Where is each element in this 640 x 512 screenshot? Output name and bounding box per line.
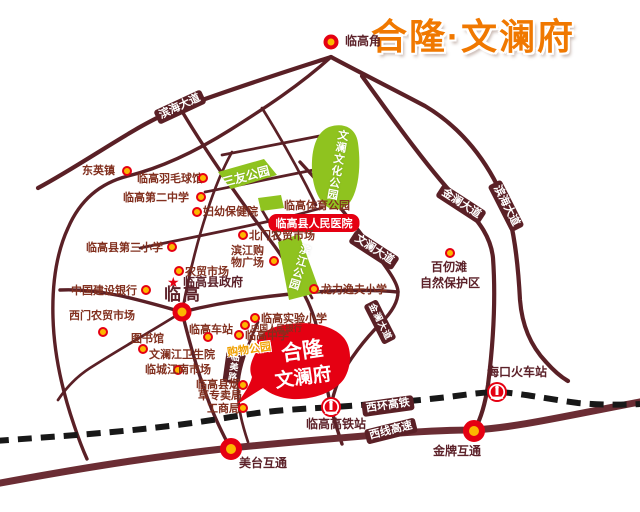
label-city-lingao: 临高 — [164, 288, 202, 301]
poi-binjiang-mall-line1: 滨江购 — [231, 245, 264, 257]
road-grid-4 — [262, 108, 316, 205]
poi-beimen-market: 北门农贸市场 — [249, 230, 315, 242]
poi-marker-icon — [141, 285, 151, 295]
train-station-icon — [486, 381, 508, 403]
poi-jiangnan-market: 临城江南市场 — [145, 364, 211, 376]
poi-marker-icon — [138, 344, 148, 354]
poi-no2-middle: 临高第二中学 — [123, 192, 189, 204]
poi-longli-primary: 龙力逸夫小学 — [321, 284, 387, 296]
poi-marker-icon — [234, 330, 244, 340]
poi-marker-icon — [203, 332, 213, 342]
poi-marker-icon — [269, 256, 279, 266]
label-nature-reserve-line1: 百仞滩 — [431, 261, 467, 274]
poi-badminton: 临高羽毛球馆 — [137, 173, 203, 185]
poi-marker-icon — [238, 403, 248, 413]
park-sports-shape — [258, 195, 284, 211]
label-lingao-cape: 临高角 — [345, 35, 381, 48]
poi-binjiang-mall-line2: 物广场 — [231, 257, 264, 269]
page-title: 合隆·文澜府 — [371, 8, 575, 60]
label-nature-reserve-line2: 自然保护区 — [420, 277, 480, 290]
poi-marker-icon — [309, 284, 319, 294]
poi-marker-icon — [240, 320, 250, 330]
map-base-layer — [0, 0, 640, 512]
label-lingao-hsr-station: 临高高铁站 — [306, 418, 366, 431]
poi-marker-icon — [198, 173, 208, 183]
poi-ximen-market: 西门农贸市场 — [69, 310, 135, 322]
poi-fuyou-hospital: 妇幼保健院 — [203, 206, 258, 218]
poi-wenlanjiang-clinic: 文澜江卫生院 — [149, 349, 215, 361]
poi-marker-icon — [98, 327, 108, 337]
interchange-marker-icon — [463, 420, 485, 442]
poi-gongshangju: 工商局 — [207, 403, 240, 415]
poi-marker-icon — [167, 242, 177, 252]
label-haikou-rail-station: 海口火车站 — [487, 366, 547, 379]
cape-marker-icon — [324, 35, 339, 50]
label-jinpai-interchange: 金牌互通 — [433, 445, 481, 458]
poi-library: 图书馆 — [131, 333, 164, 345]
poi-dongyingzhen: 东英镇 — [82, 165, 115, 177]
poi-marker-icon — [238, 230, 248, 240]
map-canvas: 合隆·文澜府 临高角 滨海大道 滨海大道 金澜大道 金澜大道 文澜大道 临美路 … — [0, 0, 640, 512]
poi-marker-icon — [192, 207, 202, 217]
poi-ccb: 中国建设银行 — [71, 285, 137, 297]
train-station-icon — [320, 396, 342, 418]
road-binhai-east — [331, 57, 568, 381]
poi-tobacco-line2: 草专卖局 — [198, 390, 242, 402]
poi-marker-icon — [445, 248, 455, 258]
label-park-sports: 临高体育公园 — [284, 200, 350, 212]
poi-marker-icon — [196, 192, 206, 202]
poi-no3-primary: 临高县第三小学 — [86, 242, 163, 254]
city-junction-marker-icon — [173, 303, 192, 322]
poi-marker-icon — [238, 380, 248, 390]
label-meitai-interchange: 美台互通 — [239, 457, 287, 470]
poi-marker-icon — [122, 166, 132, 176]
